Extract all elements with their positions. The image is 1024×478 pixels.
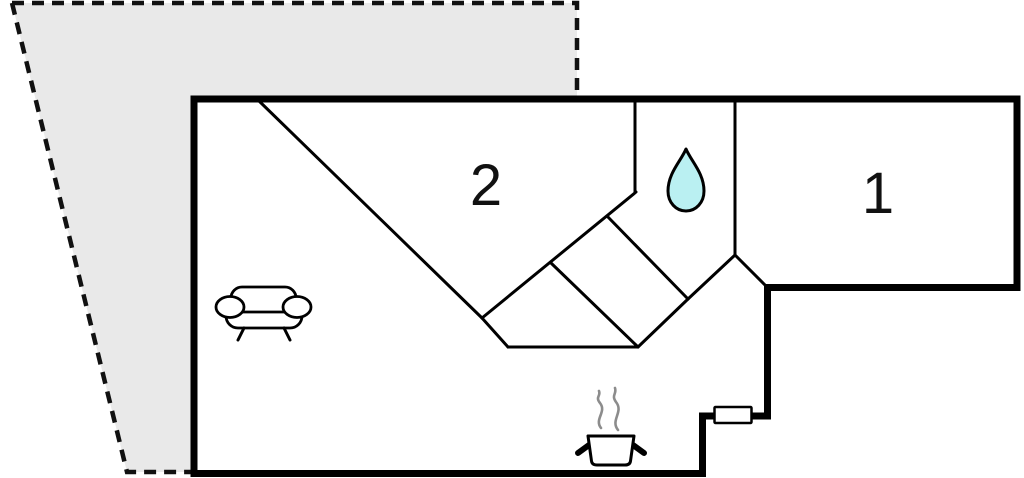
sofa-armrest-right (283, 297, 311, 318)
floor-plan-svg: 2 1 (0, 0, 1024, 478)
room-1-label: 1 (862, 161, 894, 226)
room-2-label: 2 (470, 153, 502, 218)
pot-body (588, 436, 634, 465)
building-exterior-walls (194, 99, 1017, 474)
floor-plan: 2 1 (0, 0, 1024, 478)
window-marker (715, 407, 752, 423)
sofa-armrest-left (216, 297, 244, 318)
